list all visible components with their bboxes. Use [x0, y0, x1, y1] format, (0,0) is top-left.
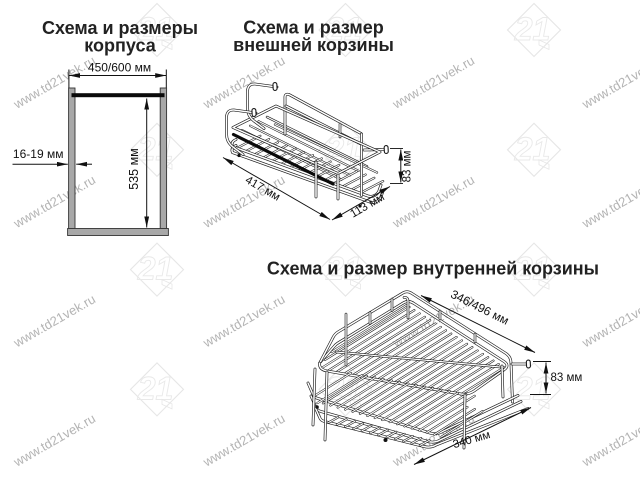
svg-text:Схема и размер внутренней корз: Схема и размер внутренней корзины: [267, 259, 599, 279]
svg-text:83 мм: 83 мм: [402, 151, 414, 183]
svg-text:83 мм: 83 мм: [551, 372, 583, 384]
svg-text:корпуса: корпуса: [84, 36, 156, 56]
svg-text:450/600 мм: 450/600 мм: [88, 61, 151, 75]
svg-text:16-19 мм: 16-19 мм: [13, 147, 64, 161]
svg-text:внешней корзины: внешней корзины: [233, 35, 394, 55]
svg-text:535 мм: 535 мм: [127, 148, 141, 190]
